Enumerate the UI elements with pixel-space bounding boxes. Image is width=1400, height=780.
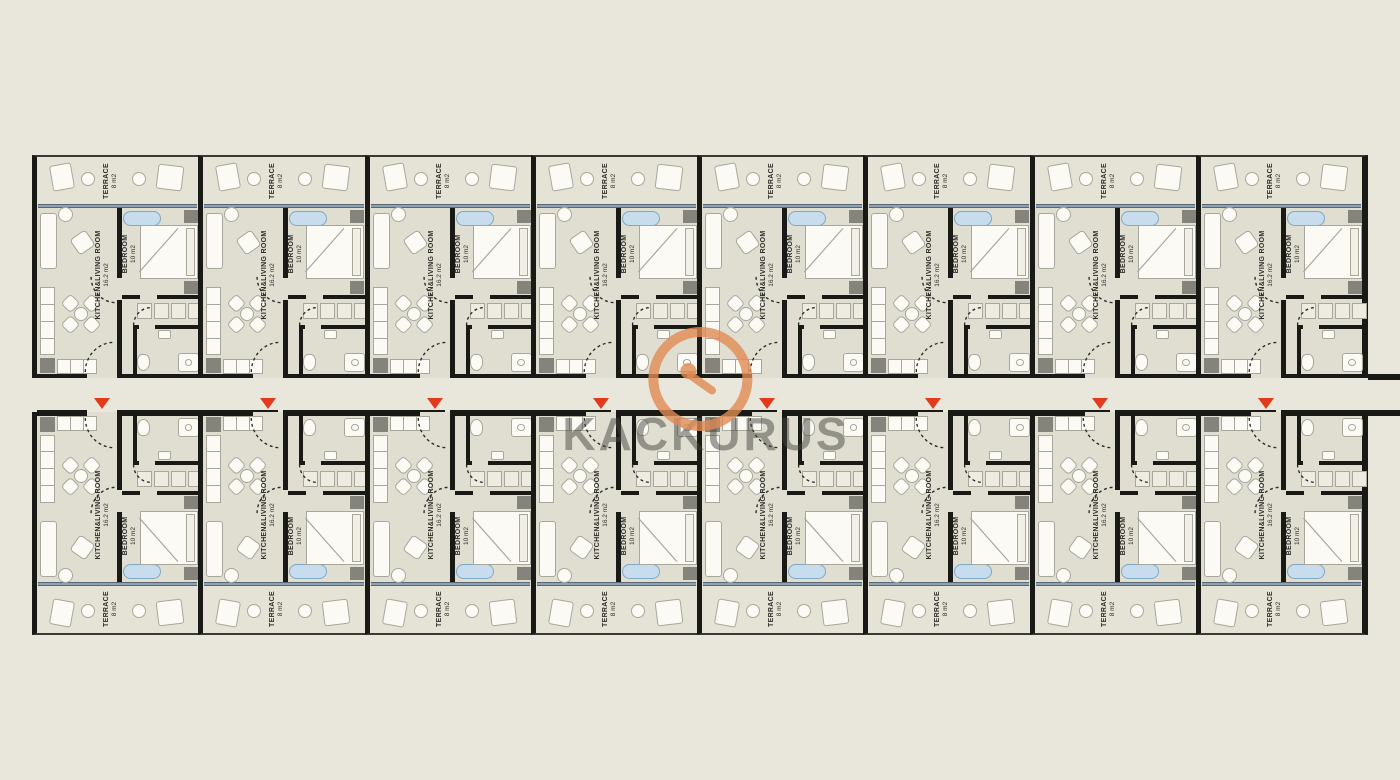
- apartment-unit: TERRACE 8 m2 BEDROOM 10 m2 KITCHEN&LIVIN…: [697, 412, 863, 635]
- door-swing-arcs: [1201, 412, 1362, 633]
- entrance-marker: [427, 398, 443, 409]
- unit-row-bottom: TERRACE 8 m2 BEDROOM 10 m2 KITCHEN&LIVIN…: [32, 412, 1368, 635]
- entrance-marker: [593, 398, 609, 409]
- entrance-marker: [759, 398, 775, 409]
- apartment-unit: TERRACE 8 m2 BEDROOM 10 m2 KITCHEN&LIVIN…: [1196, 412, 1368, 635]
- entrance-marker: [94, 398, 110, 409]
- entrance-marker: [925, 398, 941, 409]
- apartment-unit: TERRACE 8 m2 BEDROOM 10 m2 KITCHEN&LIVIN…: [1196, 155, 1368, 378]
- apartment-unit: TERRACE 8 m2 BEDROOM 10 m2 KITCHEN&LIVIN…: [198, 412, 364, 635]
- door-swing-arcs: [536, 157, 697, 378]
- building-floor-plan: TERRACE 8 m2 BEDROOM 10 m2 KITCHEN&LIVIN…: [32, 155, 1368, 635]
- apartment-unit: TERRACE 8 m2 BEDROOM 10 m2 KITCHEN&LIVIN…: [1030, 412, 1196, 635]
- entrance-marker: [1258, 398, 1274, 409]
- door-swing-arcs: [37, 157, 198, 378]
- door-swing-arcs: [868, 157, 1029, 378]
- door-swing-arcs: [1201, 157, 1362, 378]
- apartment-unit: TERRACE 8 m2 BEDROOM 10 m2 KITCHEN&LIVIN…: [198, 155, 364, 378]
- floor-plan-sheet: TERRACE 8 m2 BEDROOM 10 m2 KITCHEN&LIVIN…: [0, 0, 1400, 780]
- apartment-unit: TERRACE 8 m2 BEDROOM 10 m2 KITCHEN&LIVIN…: [697, 155, 863, 378]
- apartment-unit: TERRACE 8 m2 BEDROOM 10 m2 KITCHEN&LIVIN…: [365, 412, 531, 635]
- apartment-unit: TERRACE 8 m2 BEDROOM 10 m2 KITCHEN&LIVIN…: [863, 155, 1029, 378]
- door-swing-arcs: [203, 157, 364, 378]
- apartment-unit: TERRACE 8 m2 BEDROOM 10 m2 KITCHEN&LIVIN…: [32, 412, 198, 635]
- apartment-unit: TERRACE 8 m2 BEDROOM 10 m2 KITCHEN&LIVIN…: [531, 155, 697, 378]
- apartment-unit: TERRACE 8 m2 BEDROOM 10 m2 KITCHEN&LIVIN…: [1030, 155, 1196, 378]
- apartment-unit: TERRACE 8 m2 BEDROOM 10 m2 KITCHEN&LIVIN…: [863, 412, 1029, 635]
- entrance-marker: [1092, 398, 1108, 409]
- door-swing-arcs: [37, 412, 198, 633]
- entrance-marker: [260, 398, 276, 409]
- door-swing-arcs: [1035, 157, 1196, 378]
- apartment-unit: TERRACE 8 m2 BEDROOM 10 m2 KITCHEN&LIVIN…: [32, 155, 198, 378]
- door-swing-arcs: [370, 412, 531, 633]
- corridor: [32, 378, 1368, 412]
- apartment-unit: TERRACE 8 m2 BEDROOM 10 m2 KITCHEN&LIVIN…: [531, 412, 697, 635]
- door-swing-arcs: [203, 412, 364, 633]
- door-swing-arcs: [868, 412, 1029, 633]
- unit-row-top: TERRACE 8 m2 BEDROOM 10 m2 KITCHEN&LIVIN…: [32, 155, 1368, 378]
- door-swing-arcs: [1035, 412, 1196, 633]
- door-swing-arcs: [370, 157, 531, 378]
- apartment-unit: TERRACE 8 m2 BEDROOM 10 m2 KITCHEN&LIVIN…: [365, 155, 531, 378]
- door-swing-arcs: [702, 412, 863, 633]
- door-swing-arcs: [536, 412, 697, 633]
- door-swing-arcs: [702, 157, 863, 378]
